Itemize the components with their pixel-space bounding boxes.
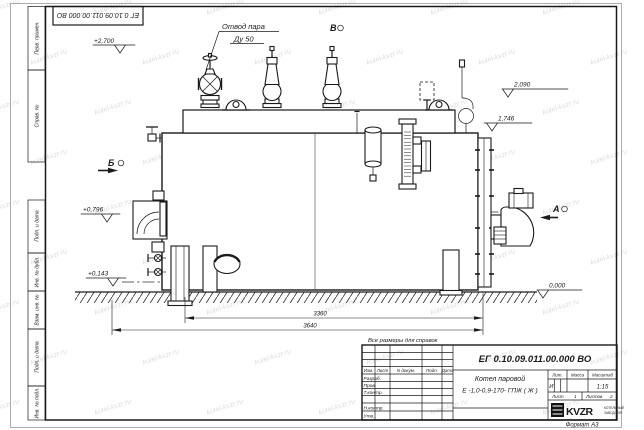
title-block: Все размеры для справок ЕГ 0.10.09.011.0… — [362, 338, 625, 429]
sheets-label: Листов — [585, 394, 603, 399]
format-label: Формат А3 — [566, 423, 599, 429]
fan-motor-unit — [491, 189, 534, 247]
drawing-svg: ЕГ 0.10.09.011.00.000 ВО Перв. примен. С… — [0, 0, 644, 430]
logo-subtext-2: ЗАВОД РЭП — [604, 411, 623, 415]
svg-text:0,000: 0,000 — [549, 283, 566, 290]
svg-text:1,746: 1,746 — [498, 116, 515, 123]
sheet-label: Лист — [551, 394, 564, 399]
dim-3640-label: 3640 — [303, 324, 317, 330]
row-prov: Пров. — [364, 383, 377, 389]
margin-cell-label: Инв. № подл. — [35, 387, 41, 418]
view-b-label: Б — [108, 158, 115, 168]
col-list: Лист — [376, 368, 389, 373]
stamp-doc-number: ЕГ 0.10.09.011.00.000 ВО — [56, 11, 139, 18]
logo-text: KVZR — [566, 406, 594, 418]
elevation-0796: +0,796 — [81, 207, 120, 223]
kvzr-logo-icon — [551, 403, 564, 417]
rear-end-flange — [475, 138, 494, 287]
margin-cell-label: Инв. № дубл. — [35, 257, 41, 288]
col-podp: Подп. — [426, 368, 438, 373]
burner-assembly — [133, 191, 167, 252]
scale-label: Масштаб — [592, 373, 613, 378]
ground-hatch — [75, 292, 537, 303]
svg-text:+0,796: +0,796 — [83, 207, 103, 214]
elevation-1746: 1,746 — [484, 116, 532, 132]
elevation-2700: +2,700 — [93, 38, 135, 53]
dim-3360-label: 3360 — [313, 312, 327, 318]
feed-check-valve — [146, 127, 162, 143]
svg-text:2,090: 2,090 — [513, 82, 531, 89]
mass-label: Масса — [571, 373, 585, 378]
margin-cell-label: Подп. и дата — [35, 210, 41, 242]
steam-outlet-label: Отвод пара — [222, 22, 265, 31]
elevation-0143: +0,143 — [86, 271, 126, 287]
view-v-label: В — [330, 23, 337, 33]
logo-subtext-1: КОТЕЛЬНЫЙ — [604, 406, 625, 410]
margin-cell-label: Взам. инв. № — [35, 294, 41, 326]
top-designation-stamp: ЕГ 0.10.09.011.00.000 ВО — [53, 7, 143, 26]
col-izm: Изм. — [364, 368, 374, 373]
margin-cell-label: Подп. и дата — [35, 341, 41, 373]
scale-value: 1:15 — [597, 385, 609, 391]
col-data: Дата — [441, 368, 454, 373]
row-tkontr: Т.контр. — [364, 390, 383, 396]
lifting-lug — [222, 100, 250, 110]
elevation-2090: 2,090 — [502, 82, 568, 98]
boiler-side-view: Отвод пара Ду 50 +2,700 2,090 — [75, 22, 582, 335]
row-utv: Утв. — [364, 414, 375, 420]
row-razrab: Разраб. — [364, 376, 381, 382]
safety-valve — [263, 47, 281, 108]
margin-cell-label: Справ. № — [35, 104, 41, 127]
row-nkontr: Н.контр. — [364, 406, 384, 412]
product-name-line1: Котел паровой — [475, 375, 525, 383]
drawing-sheet: kotel-kvzr.rukotel-kvzr.rukotel-kvzr.ruk… — [0, 0, 644, 430]
reference-note: Все размеры для справок — [368, 338, 438, 344]
lit-value: И — [549, 384, 554, 390]
product-name-line2: Е -1,0-0,9-170- ГПЖ ( Ж ) — [462, 388, 537, 395]
svg-text:+0,143: +0,143 — [88, 271, 108, 278]
steam-outlet-valve — [199, 54, 222, 108]
margin-cell-label: Перв. примен. — [35, 21, 41, 54]
manhole — [214, 255, 240, 274]
lit-label: Лит. — [551, 373, 563, 378]
col-ndokum: N докум. — [397, 368, 415, 373]
elevation-0000: 0,000 — [537, 283, 582, 299]
svg-text:+2,700: +2,700 — [94, 38, 114, 45]
titleblock-doc-number: ЕГ 0.10.09.011.00.000 ВО — [479, 354, 592, 365]
margin-cells: Перв. примен. Справ. № Подп. и дата Инв.… — [28, 7, 45, 421]
view-a-label: А — [552, 204, 560, 214]
sheet-value: 1 — [574, 394, 577, 399]
sheets-value: 2 — [609, 394, 613, 399]
steam-outlet-dn-label: Ду 50 — [233, 35, 254, 44]
